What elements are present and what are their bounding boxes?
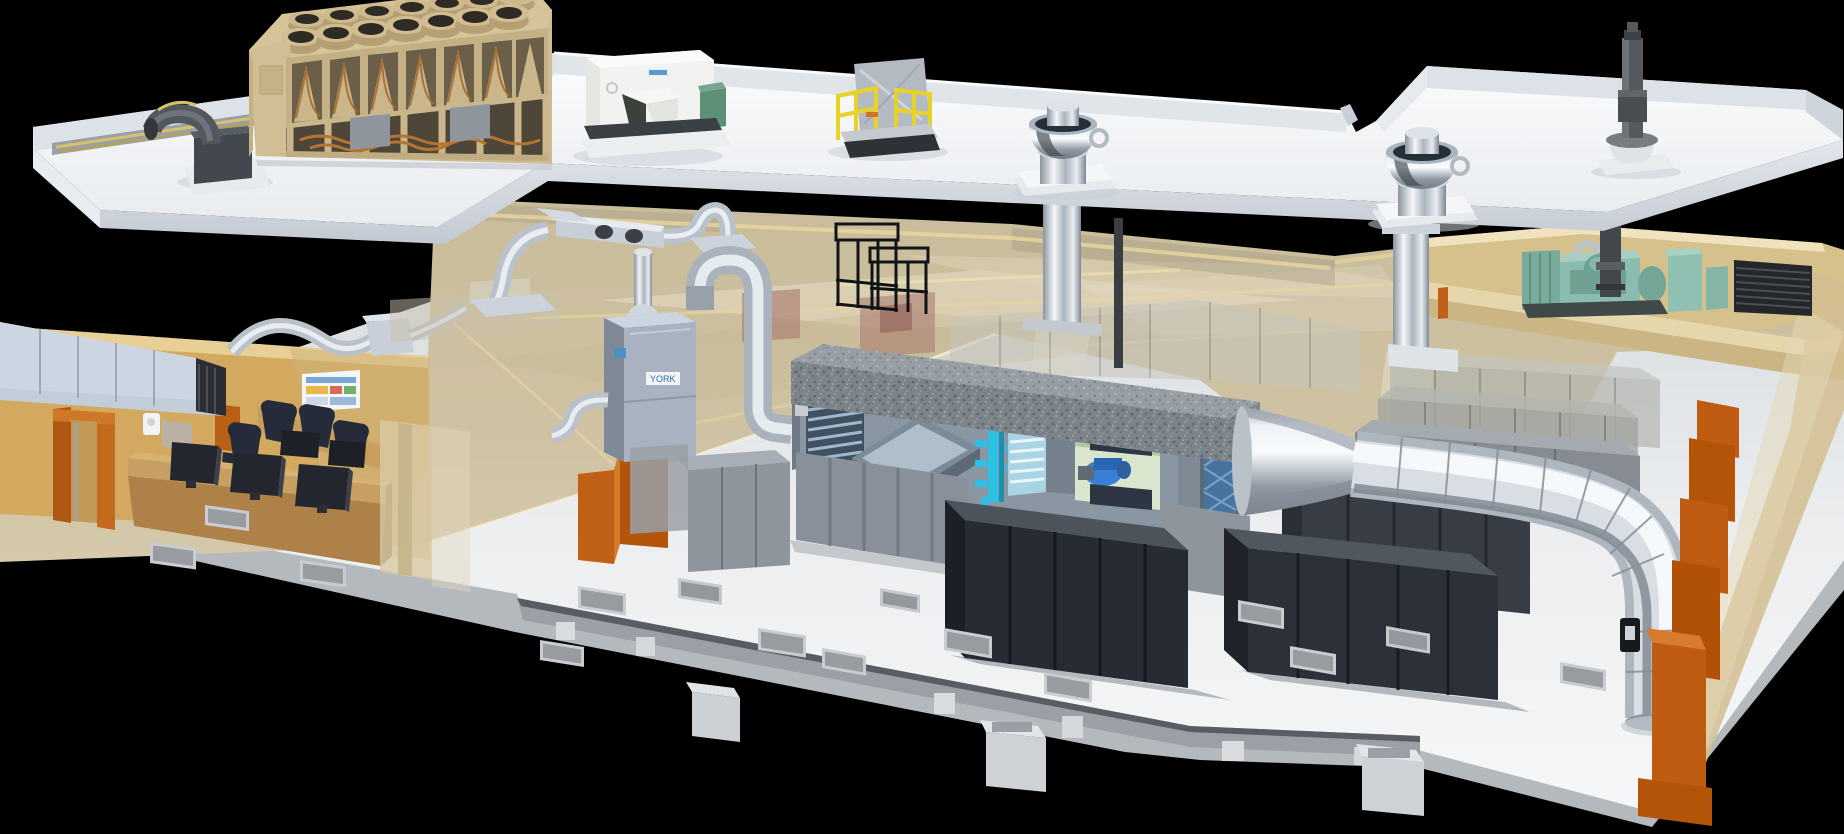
svg-text:YORK: YORK xyxy=(650,374,676,384)
